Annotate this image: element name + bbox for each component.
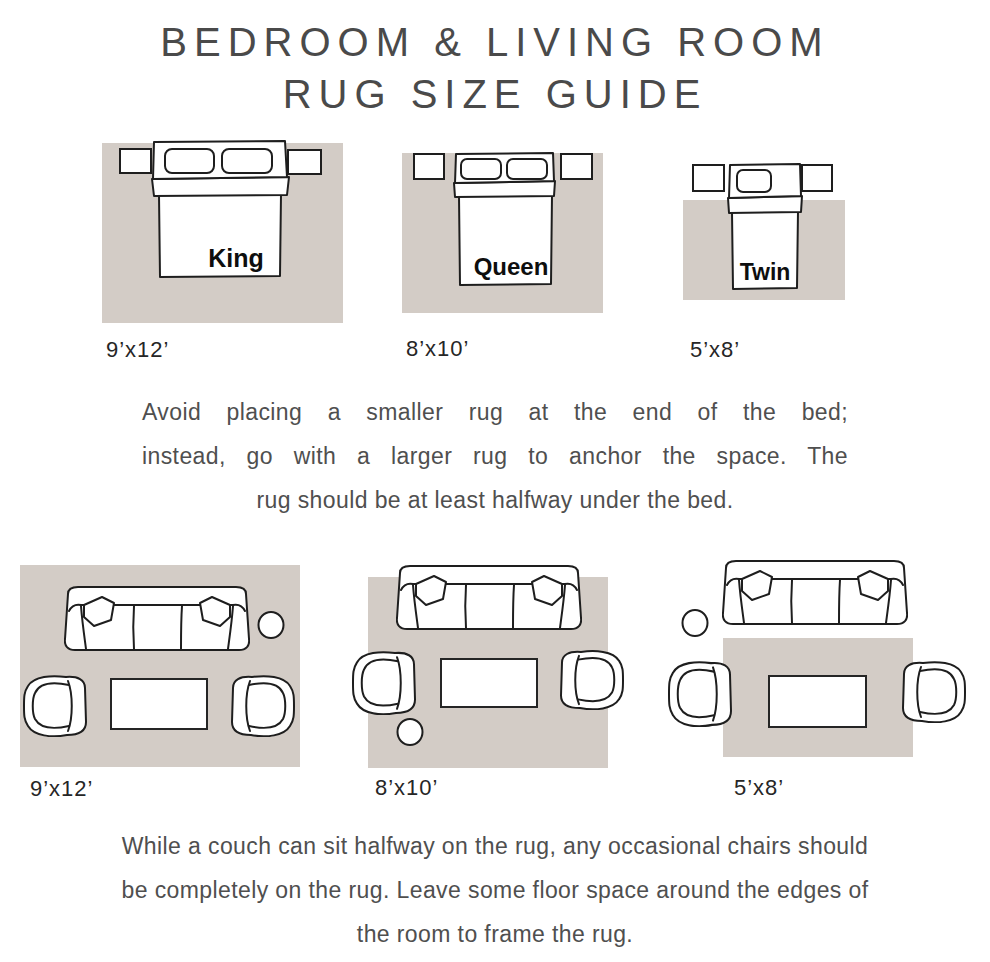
king-bed-fold <box>152 177 289 196</box>
living-5x8-size-label: 5’x8’ <box>734 775 784 801</box>
king-bed-label: King <box>208 244 264 272</box>
page-title-line1: BEDROOM & LIVING ROOM <box>0 16 990 68</box>
rug-size-guide-infographic: BEDROOM & LIVING ROOM RUG SIZE GUIDE Kin… <box>0 0 990 962</box>
living-9x12-armchair-left <box>22 675 90 737</box>
queen-bed: Queen <box>453 151 556 287</box>
bedroom-tip-line2: instead, go with a larger rug to anchor … <box>142 434 848 478</box>
page-title: BEDROOM & LIVING ROOM RUG SIZE GUIDE <box>0 16 990 120</box>
king-bed: King <box>150 139 290 279</box>
page-title-line2: RUG SIZE GUIDE <box>0 68 990 120</box>
king-nightstand-left <box>119 148 152 174</box>
living-5x8-coffee-table <box>768 675 867 728</box>
living-8x10-coffee-table <box>440 658 538 708</box>
queen-nightstand-right <box>560 153 593 180</box>
living-5x8-sofa <box>722 558 908 628</box>
living-5x8-side-table <box>681 609 709 637</box>
living-9x12-size-label: 9’x12’ <box>30 776 93 802</box>
living-9x12-armchair-right <box>228 675 296 737</box>
living-tip-line2: be completely on the rug. Leave some flo… <box>60 868 930 912</box>
living-8x10-armchair-right <box>557 650 625 710</box>
living-5x8-armchair-right <box>899 661 967 723</box>
living-tip-line3: the room to frame the rug. <box>60 912 930 956</box>
living-9x12-sofa <box>64 584 250 654</box>
bedroom-tip-line1: Avoid placing a smaller rug at the end o… <box>142 390 848 434</box>
living-tip: While a couch can sit halfway on the rug… <box>60 824 930 956</box>
twin-bed: Twin <box>727 162 803 291</box>
king-size-label: 9’x12’ <box>106 337 169 363</box>
living-9x12-coffee-table <box>110 678 208 730</box>
queen-bed-label: Queen <box>474 253 549 280</box>
bedroom-tip-line3: rug should be at least halfway under the… <box>142 478 848 522</box>
twin-size-label: 5’x8’ <box>690 337 740 363</box>
living-8x10-size-label: 8’x10’ <box>375 775 438 801</box>
living-tip-line1: While a couch can sit halfway on the rug… <box>60 824 930 868</box>
king-nightstand-right <box>287 149 322 175</box>
living-8x10-side-table <box>396 718 424 746</box>
queen-size-label: 8’x10’ <box>406 336 469 362</box>
twin-bed-label: Twin <box>740 259 791 285</box>
bedroom-tip: Avoid placing a smaller rug at the end o… <box>142 390 848 522</box>
living-5x8-armchair-left <box>667 661 735 727</box>
living-8x10-armchair-left <box>351 651 419 715</box>
twin-nightstand-right <box>801 164 833 192</box>
living-9x12-side-table <box>257 611 285 639</box>
twin-nightstand-left <box>692 164 725 192</box>
living-8x10-sofa <box>396 563 582 633</box>
queen-nightstand-left <box>413 153 445 180</box>
